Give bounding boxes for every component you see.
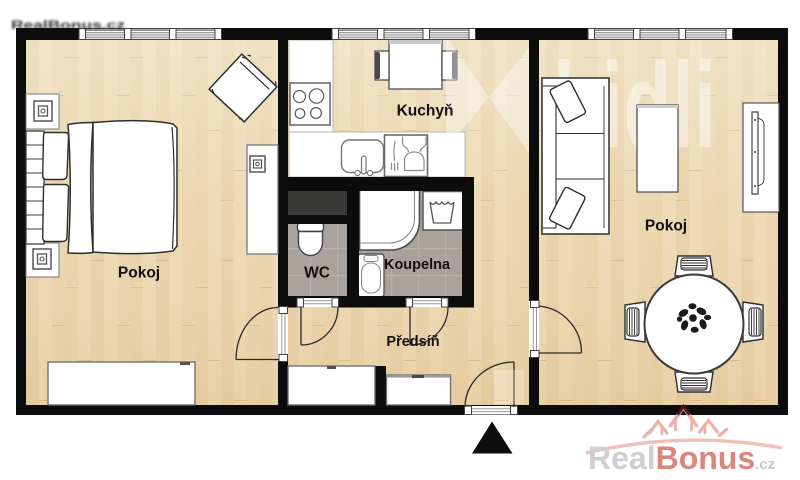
svg-text:WC: WC [304, 265, 330, 282]
svg-text:Koupelna: Koupelna [384, 257, 451, 273]
svg-text:Kuchyň: Kuchyň [397, 103, 454, 120]
svg-text:Pokoj: Pokoj [645, 218, 687, 235]
svg-text:RealBonus.cz: RealBonus.cz [11, 18, 125, 32]
svg-text:RealBonus.cz: RealBonus.cz [588, 440, 775, 476]
svg-text:Předsíň: Předsíň [386, 334, 439, 350]
svg-text:Pokoj: Pokoj [118, 265, 160, 282]
